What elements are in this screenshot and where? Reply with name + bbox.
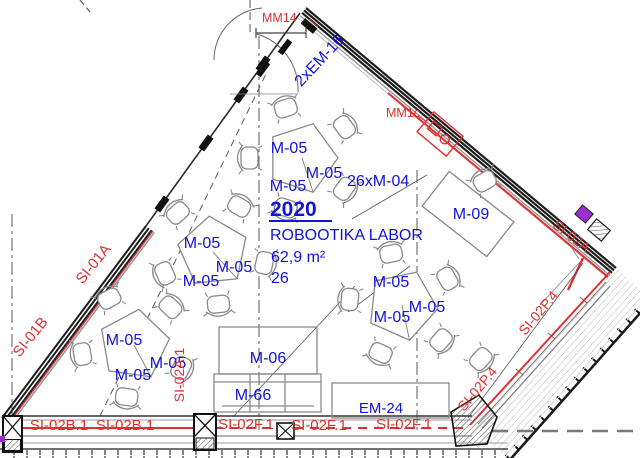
wall-end-purple-marker <box>575 205 593 223</box>
glazing-label-top: 2xEM-16 <box>292 32 348 90</box>
table-cluster-4 <box>315 222 487 391</box>
table-label: M-05 <box>183 273 220 290</box>
room-number-label: 2020 <box>270 198 317 221</box>
table-label: M-05 <box>115 367 152 384</box>
table-label: M-05 <box>216 259 253 276</box>
table-label: M-05 <box>374 309 411 326</box>
table-label: M-05 <box>106 332 143 349</box>
column-left <box>0 416 22 452</box>
furniture-labels: M-05 M-05 M-05 M-05 M-05 M-05 M-05 M-05 … <box>106 32 490 417</box>
desk-label: M-09 <box>453 206 490 223</box>
wall-label-si02p: SI-02P.4 <box>515 287 561 338</box>
wall-label-si02f: SI-02F.1 <box>376 416 432 433</box>
purple-marker-left <box>0 436 5 442</box>
wall-label-si01a: SI-01A <box>72 241 114 287</box>
table-label: M-05 <box>373 274 410 291</box>
chair-count-label: 26xM-04 <box>347 173 409 190</box>
wall-label-si02b: SI-02B.1 <box>96 417 154 434</box>
door-label-mm14: MM14 <box>262 11 297 25</box>
room-capacity-label: 26 <box>271 270 289 287</box>
table-label: M-05 <box>271 140 308 157</box>
device-label-mm1c: MM1c <box>386 106 420 120</box>
sideboard-label: M-66 <box>235 387 272 404</box>
wall-label-si02a-corner: SI-02A. <box>550 216 597 257</box>
wall-top-right <box>298 8 616 305</box>
table-label: M-05 <box>184 235 221 252</box>
room-area-label: 62,9 m² <box>271 249 326 266</box>
wall-label-si02b: SI-02B.1 <box>30 417 88 434</box>
table-label: M-05 <box>270 178 307 195</box>
equipment-label: EM-24 <box>359 400 403 417</box>
table-label: M-05 <box>306 165 343 182</box>
wall-label-si02a-vertical: SI-02A.1 <box>171 348 187 403</box>
table-label: M-05 <box>409 299 446 316</box>
room-name-label: ROBOOTIKA LABOR <box>270 227 423 244</box>
cabinet-label: M-06 <box>250 350 287 367</box>
wall-label-si02f: SI-02F.1 <box>218 416 274 433</box>
wall-label-si01b: SI-01B <box>9 314 51 360</box>
floorplan-canvas: 2020 ROBOOTIKA LABOR 62,9 m² 26 M-05 M-0… <box>0 0 640 458</box>
chair <box>267 92 305 125</box>
wall-label-si02f: SI-02F.1 <box>291 417 347 434</box>
chair <box>325 107 364 147</box>
chair <box>238 142 263 174</box>
column-mid <box>194 414 216 450</box>
floorplan-drawing: 2020 ROBOOTIKA LABOR 62,9 m² 26 M-05 M-0… <box>0 0 640 458</box>
